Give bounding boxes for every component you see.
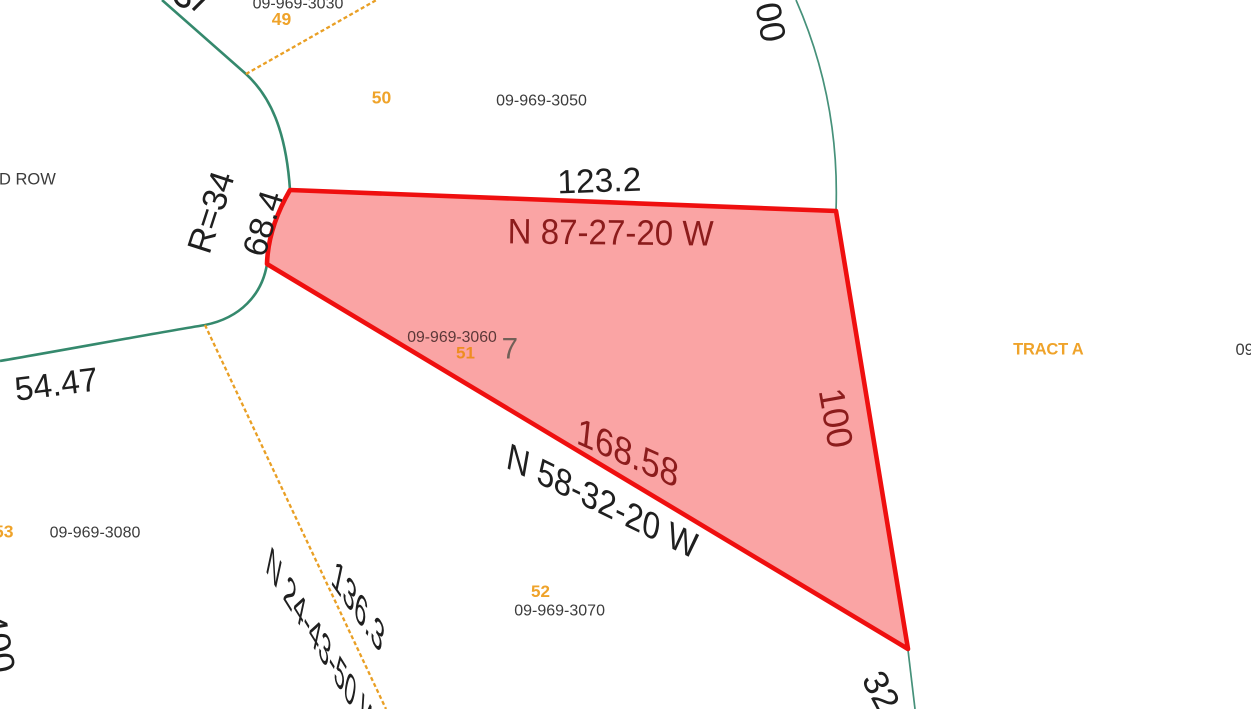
svg-text:D ROW: D ROW bbox=[0, 171, 56, 189]
svg-text:51: 51 bbox=[456, 344, 475, 363]
svg-text:09-969-3070: 09-969-3070 bbox=[514, 603, 605, 620]
svg-text:09-969-3080: 09-969-3080 bbox=[50, 525, 141, 542]
svg-text:50: 50 bbox=[372, 88, 392, 108]
svg-text:N 87-27-20 W: N 87-27-20 W bbox=[507, 211, 714, 253]
svg-text:7: 7 bbox=[502, 333, 518, 366]
svg-text:123.2: 123.2 bbox=[557, 162, 642, 202]
svg-text:49: 49 bbox=[272, 9, 292, 29]
svg-text:00: 00 bbox=[747, 0, 793, 45]
svg-text:52: 52 bbox=[531, 582, 550, 601]
svg-text:09-969-3060: 09-969-3060 bbox=[407, 329, 497, 346]
svg-text:09-969-3030: 09-969-3030 bbox=[253, 0, 344, 13]
svg-text:53: 53 bbox=[0, 522, 14, 542]
svg-text:TRACT A: TRACT A bbox=[1013, 341, 1084, 359]
svg-text:09-969-3040: 09-969-3040 bbox=[1236, 341, 1251, 359]
svg-text:09-969-3050: 09-969-3050 bbox=[496, 93, 587, 110]
